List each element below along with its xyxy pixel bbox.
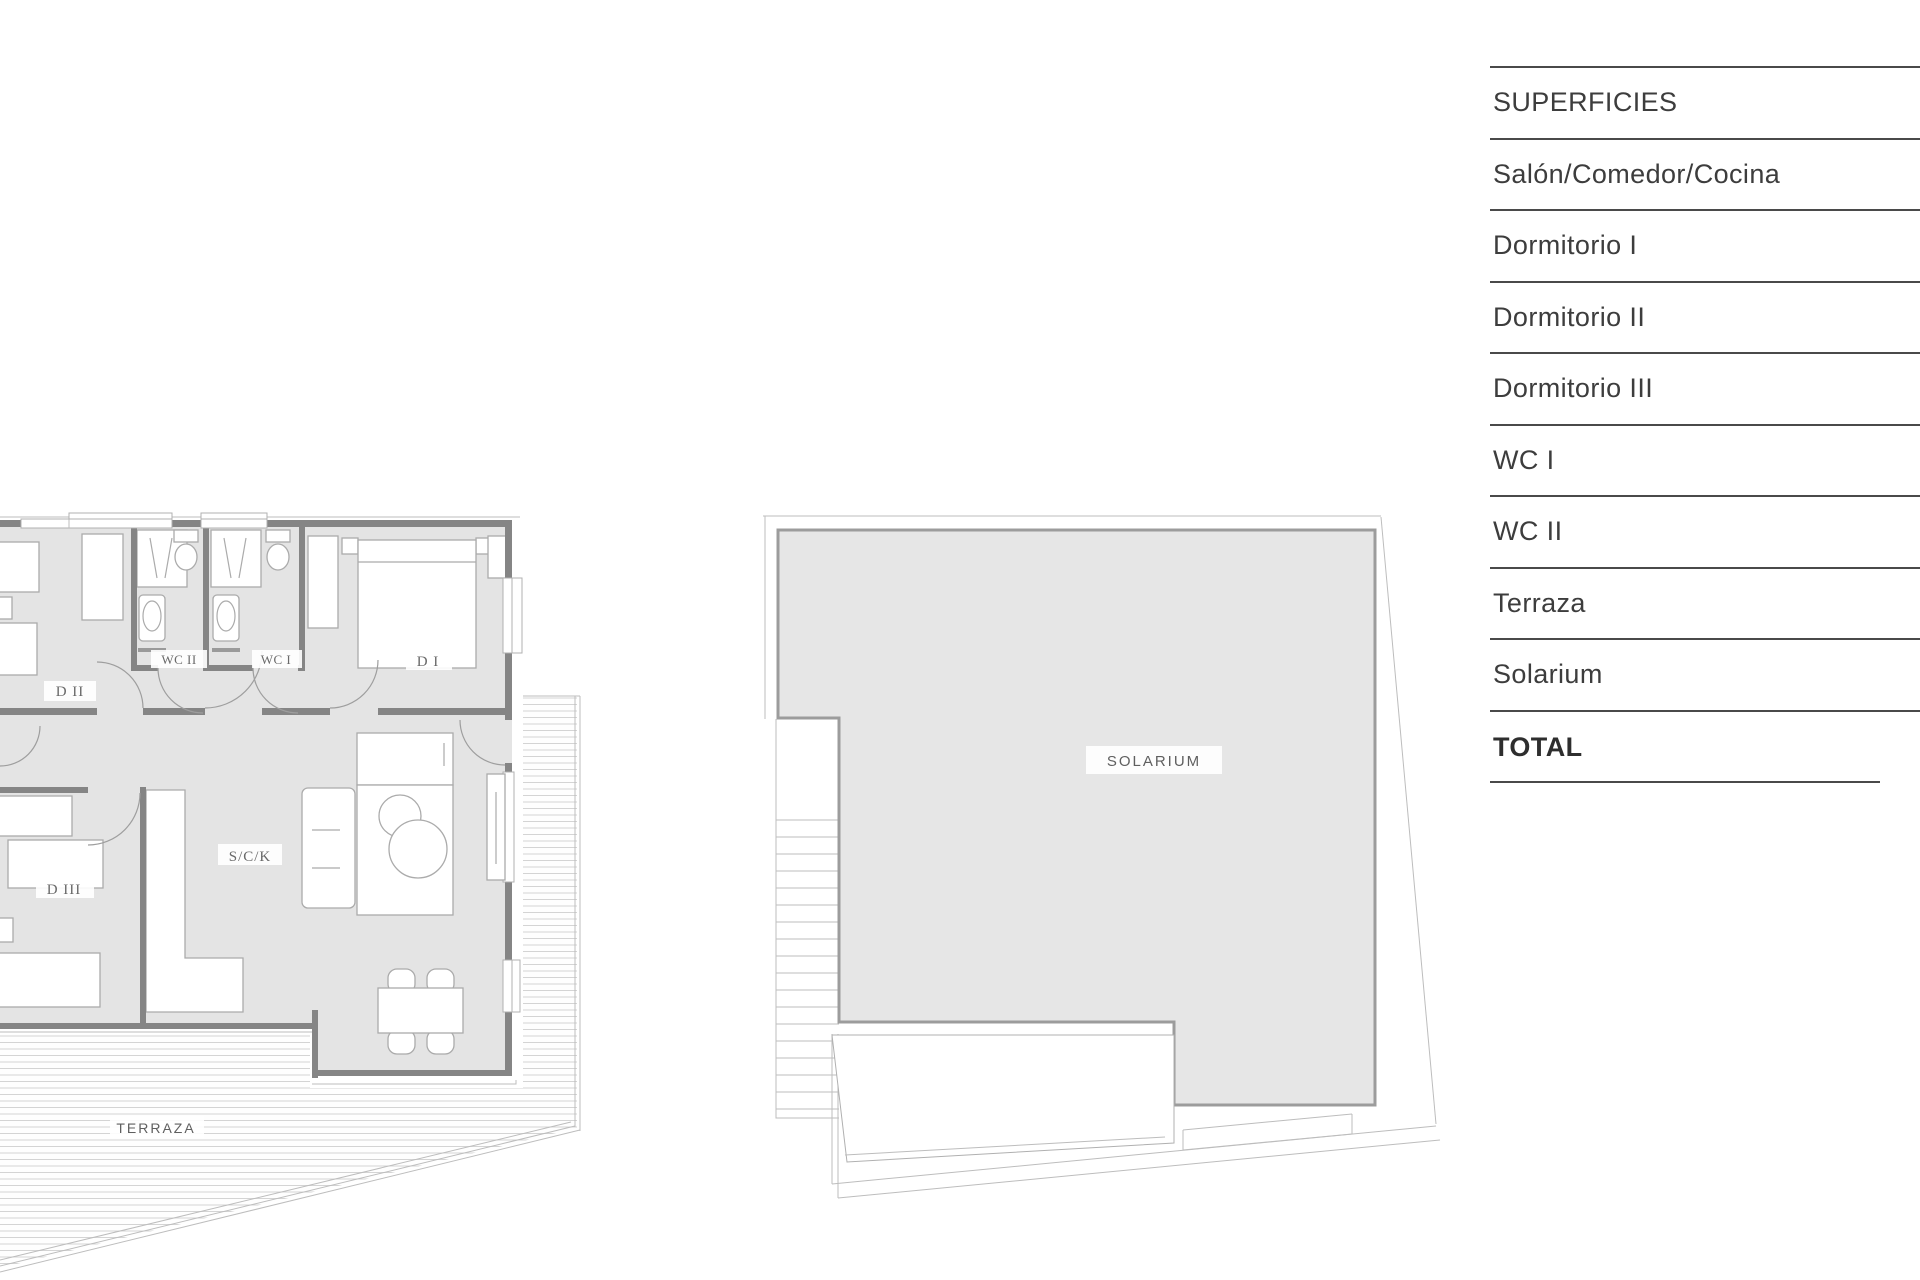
surfaces-row-wc-1: WC I bbox=[1490, 426, 1920, 498]
surfaces-row-salon: Salón/Comedor/Cocina bbox=[1490, 140, 1920, 212]
room-label-solarium: SOLARIUM bbox=[1107, 753, 1201, 770]
page: D II WC II WC I D I S/C/K D III TERRAZA bbox=[0, 0, 1920, 1280]
surfaces-table-header: SUPERFICIES bbox=[1490, 68, 1920, 140]
room-label-terraza: TERRAZA bbox=[116, 1120, 195, 1136]
surfaces-row-solarium: Solarium bbox=[1490, 640, 1920, 712]
surfaces-row-terraza: Terraza bbox=[1490, 569, 1920, 641]
surfaces-table: SUPERFICIES Salón/Comedor/Cocina Dormito… bbox=[1490, 66, 1920, 783]
stairs bbox=[776, 719, 839, 1118]
surfaces-row-wc-2: WC II bbox=[1490, 497, 1920, 569]
surfaces-row-dormitorio-2: Dormitorio II bbox=[1490, 283, 1920, 355]
floor-plan: D II WC II WC I D I S/C/K D III TERRAZA bbox=[0, 500, 600, 1280]
surfaces-row-total: TOTAL bbox=[1490, 712, 1920, 784]
room-label-wc1: WC I bbox=[261, 652, 292, 667]
room-label-d2: D II bbox=[56, 684, 85, 700]
surfaces-row-dormitorio-3: Dormitorio III bbox=[1490, 354, 1920, 426]
room-label-sck: S/C/K bbox=[229, 849, 272, 865]
room-label-d1: D I bbox=[417, 654, 440, 670]
room-label-d3: D III bbox=[47, 882, 82, 898]
room-label-wc2: WC II bbox=[161, 652, 196, 667]
surfaces-row-dormitorio-1: Dormitorio I bbox=[1490, 211, 1920, 283]
roof-plan: SOLARIUM bbox=[750, 500, 1450, 1200]
solarium-slab bbox=[778, 530, 1375, 1105]
